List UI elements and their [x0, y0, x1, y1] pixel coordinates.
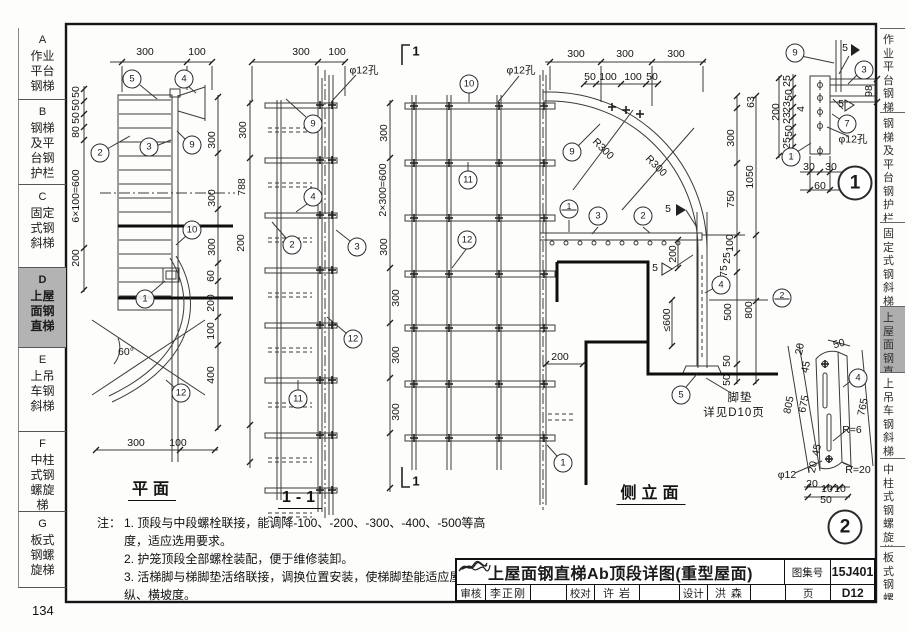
note-item: 2. 护笼顶段全部螺栓装配，便于维修装卸。 [97, 550, 493, 568]
designer-name: 洪 森 [707, 585, 751, 601]
right-edge-tab: 作业平台钢梯 [880, 28, 905, 112]
sidebar-tab-label: 式钢 [19, 221, 66, 236]
right-edge-tab: 上屋面钢直梯 [880, 306, 905, 372]
sheet-page-number: 134 [32, 603, 54, 618]
sidebar-tab-label: 梯 [19, 498, 66, 513]
atlas-number-label: 图集号 [784, 560, 830, 584]
right-edge-tab: 固定式钢斜梯 [880, 222, 905, 306]
sidebar-tab-label: 式钢 [19, 468, 66, 483]
sidebar-tab-label: 斜梯 [19, 236, 66, 251]
right-edge-tab: 中柱式钢螺旋梯 [880, 458, 905, 546]
sidebar-tab-label: 作业 [19, 49, 66, 64]
drawing-title: 上屋面钢直梯Ab顶段详图(重型屋面) [457, 560, 784, 584]
sidebar-tab-letter: E [19, 353, 66, 367]
sidebar-tab-letter: A [19, 33, 66, 47]
page-value: D12 [830, 585, 874, 601]
sidebar-tab-label: 及平 [19, 136, 66, 151]
sidebar-tab-label: 板式 [19, 533, 66, 548]
title-block: 上屋面钢直梯Ab顶段详图(重型屋面) 图集号 15J401 审核 李正刚 校对 … [455, 558, 876, 602]
right-edge-tab: 钢梯及平台钢护栏 [880, 112, 905, 222]
sidebar-tab-label: 螺旋 [19, 483, 66, 498]
sidebar-tab-label: 固定 [19, 206, 66, 221]
sidebar-tab-letter: C [19, 190, 66, 204]
sidebar-tab-label: 护栏 [19, 166, 66, 181]
notes-block: 注：1. 顶段与中段螺栓联接，能调降-100、-200、-300、-400、-5… [97, 514, 493, 604]
sidebar-tab-A: A作业平台钢梯 [18, 28, 66, 100]
sidebar-tab-label: 车钢 [19, 384, 66, 399]
sidebar-tab-label: 上吊 [19, 369, 66, 384]
sidebar-tab-label: 钢螺 [19, 548, 66, 563]
note-item: 注：1. 顶段与中段螺栓联接，能调降-100、-200、-300、-400、-5… [97, 514, 493, 550]
sidebar-tab-label: 上屋 [19, 289, 66, 304]
sidebar-tab-G: G板式钢螺旋梯 [18, 512, 66, 588]
drawing-sheet: A作业平台钢梯B钢梯及平台钢护栏C固定式钢斜梯D上屋面钢直梯E上吊车钢斜梯F中柱… [0, 0, 907, 631]
sidebar-tab-label: 直梯 [19, 319, 66, 334]
checker-label: 校对 [566, 585, 594, 601]
reviewer-signature [530, 585, 566, 601]
generated-geometry [81, 59, 880, 517]
sidebar-tab-letter: G [19, 517, 66, 531]
sidebar-tab-label: 面钢 [19, 304, 66, 319]
detail-2-drawing [788, 340, 873, 497]
sidebar-tab-label: 钢梯 [19, 79, 66, 94]
sidebar-tab-letter: D [19, 273, 66, 287]
page-label: 页 [785, 585, 831, 601]
sidebar-tab-C: C固定式钢斜梯 [18, 185, 66, 268]
sidebar-tab-label: 钢梯 [19, 121, 66, 136]
elevation-drawing [402, 45, 778, 487]
sidebar-tab-F: F中柱式钢螺旋梯 [18, 432, 66, 512]
atlas-number-value: 15J401 [830, 560, 874, 584]
right-edge-tab: 上吊车钢斜梯 [880, 372, 905, 458]
sidebar-tab-label: 平台 [19, 64, 66, 79]
right-edge-tab: 板式钢螺旋梯 [880, 546, 905, 600]
checker-name: 许 岩 [594, 585, 640, 601]
sidebar-tab-D: D上屋面钢直梯 [18, 268, 66, 348]
sidebar-tab-label: 旋梯 [19, 563, 66, 578]
reviewer-label: 审核 [457, 585, 485, 601]
designer-label: 设计 [679, 585, 707, 601]
checker-signature [639, 585, 679, 601]
sidebar-tab-label: 台钢 [19, 151, 66, 166]
sidebar-tab-B: B钢梯及平台钢护栏 [18, 100, 66, 185]
sidebar-tab-label: 中柱 [19, 453, 66, 468]
sidebar-tab-letter: F [19, 437, 66, 451]
left-sidebar: A作业平台钢梯B钢梯及平台钢护栏C固定式钢斜梯D上屋面钢直梯E上吊车钢斜梯F中柱… [18, 28, 66, 588]
sidebar-tab-E: E上吊车钢斜梯 [18, 348, 66, 432]
sidebar-tab-label: 斜梯 [19, 399, 66, 414]
designer-signature [750, 585, 785, 601]
sidebar-tab-letter: B [19, 105, 66, 119]
reviewer-name: 李正刚 [485, 585, 531, 601]
section-1-1-drawing [250, 62, 390, 520]
note-item: 3. 活梯脚与梯脚垫活络联接，调换位置安装，使梯脚垫能适应屋面纵、横坡度。 [97, 568, 493, 604]
plan-view-drawing [84, 62, 235, 462]
